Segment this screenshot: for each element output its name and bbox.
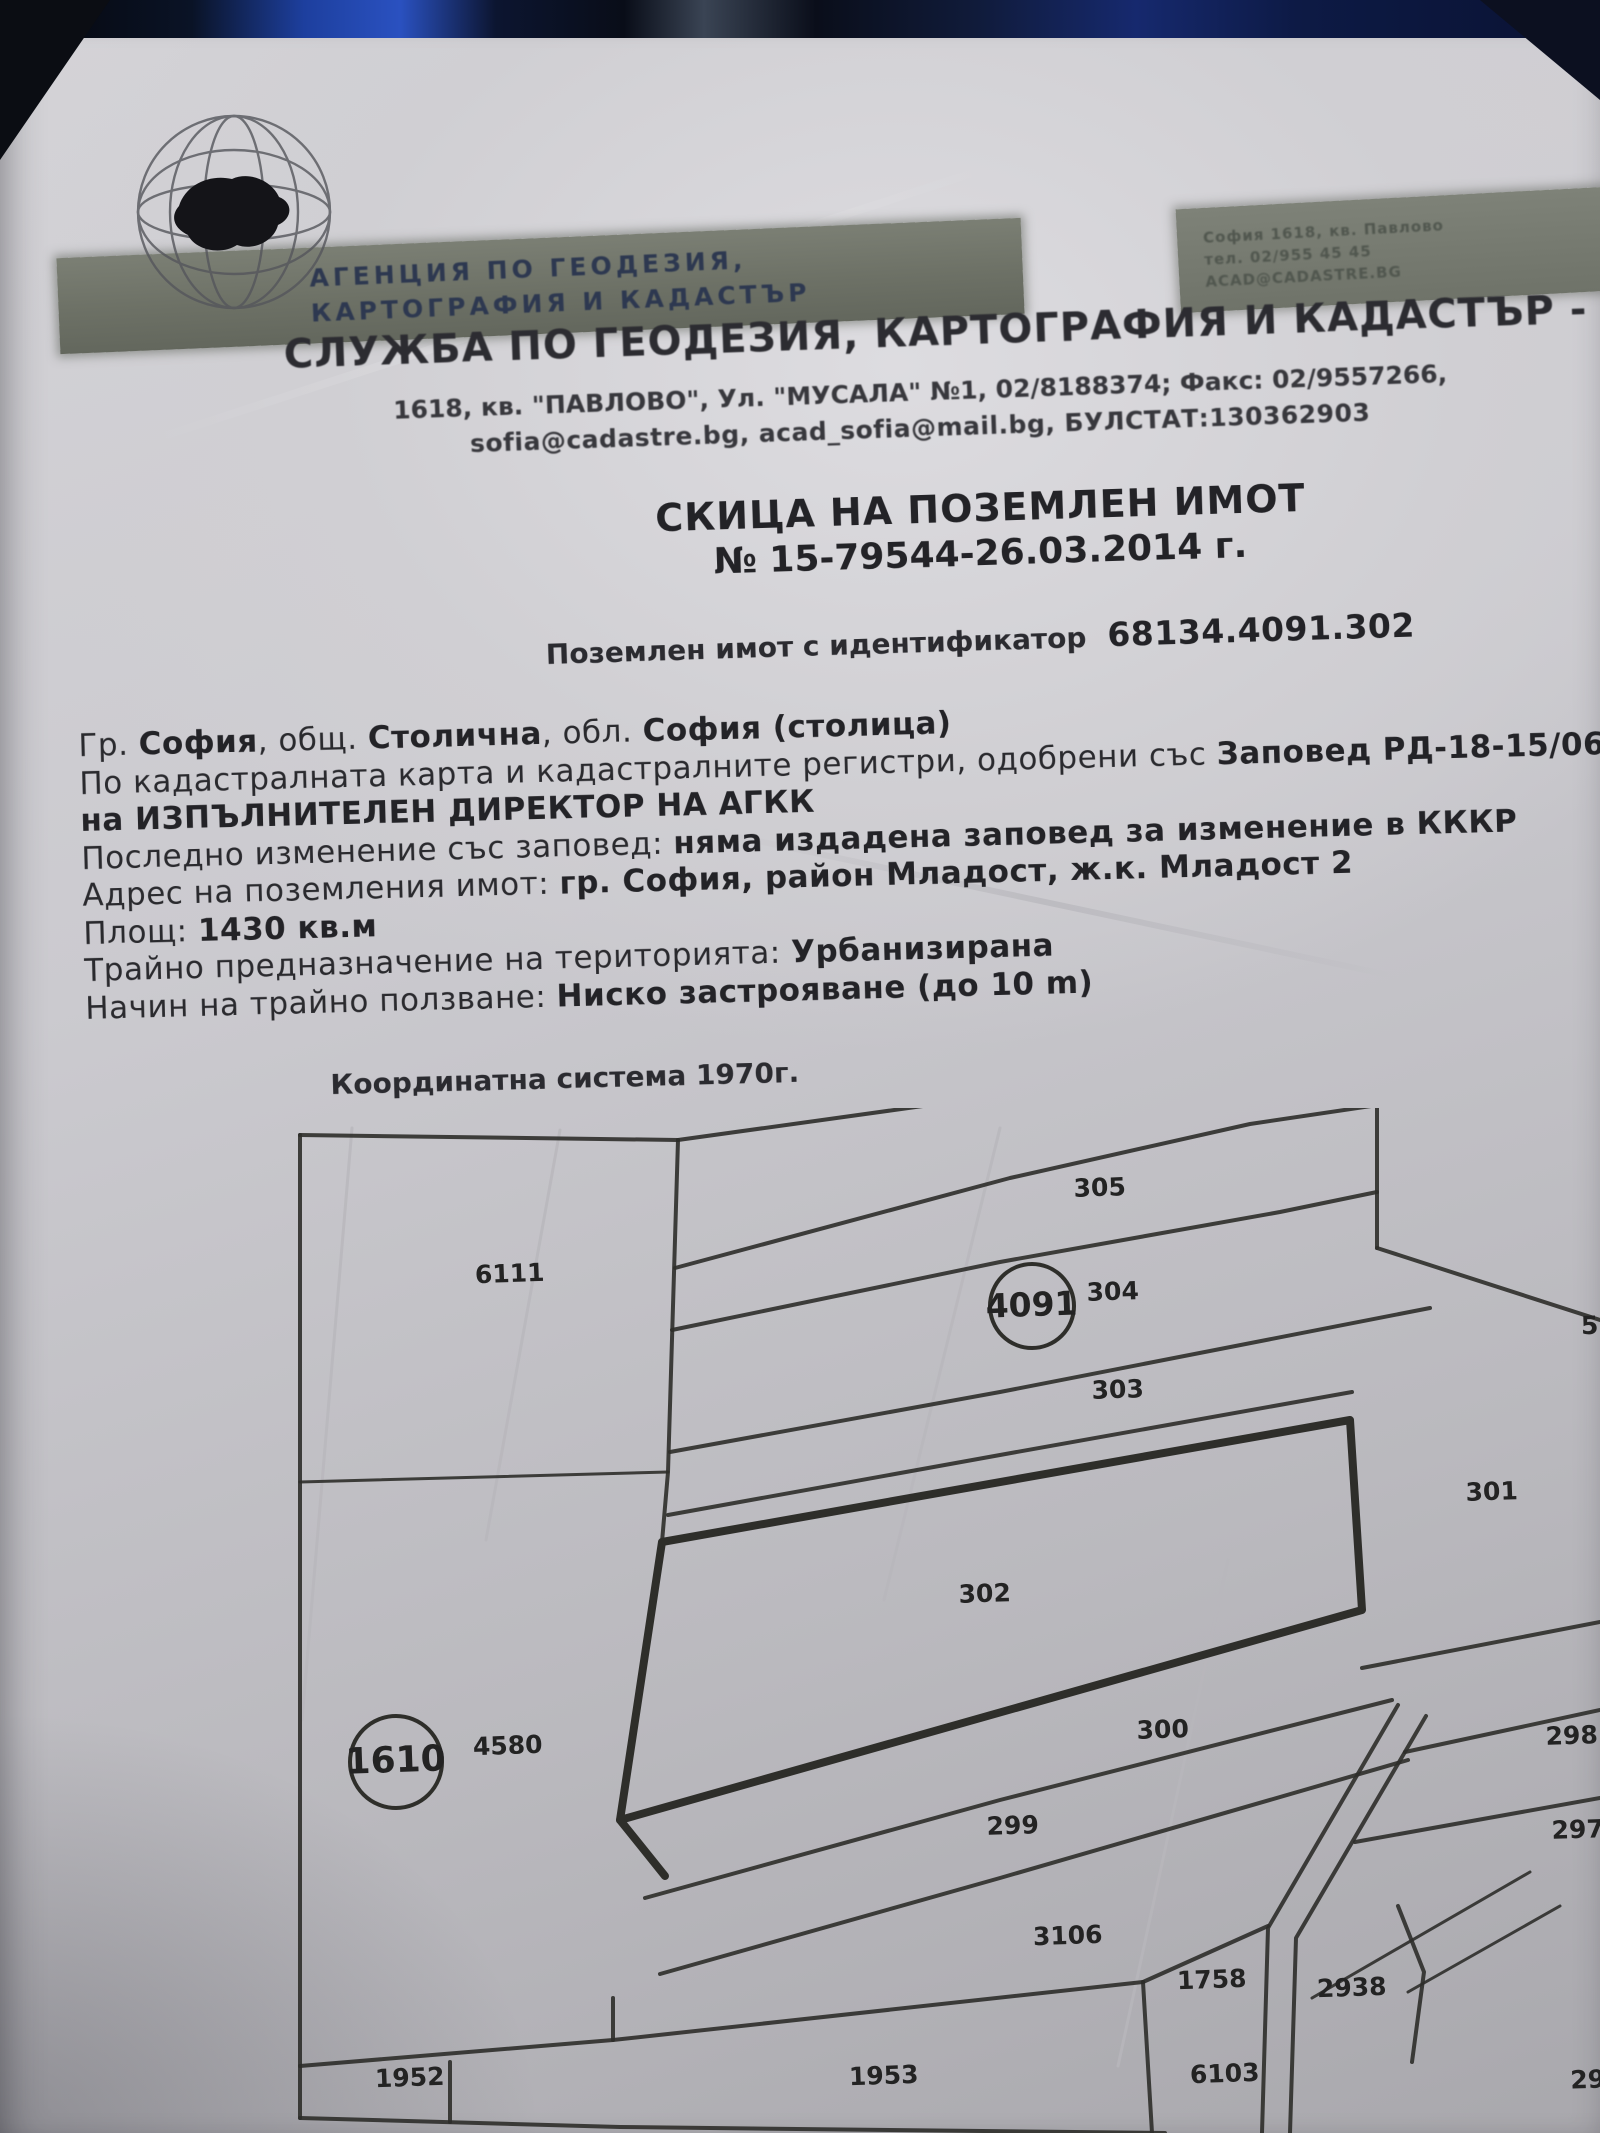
map-paper-crease xyxy=(486,1130,560,1540)
cadastre-boundary-line xyxy=(300,2118,1165,2133)
parcel-label-297: 297 xyxy=(1551,1814,1600,1845)
cadastre-boundary-line xyxy=(1143,1982,1152,2133)
cadastre-boundary-line xyxy=(668,1392,1352,1515)
photo-of-cadastral-document: { "colors":{ "paper":"#cfced3", "ink":"#… xyxy=(0,0,1600,2133)
photo-background-strip xyxy=(0,0,1600,38)
parcel-label-298: 298 xyxy=(1545,1720,1598,1751)
parcel-label-29: 29 xyxy=(1570,2064,1600,2094)
parcel-label-4091: 4091 xyxy=(985,1283,1078,1325)
cadastre-boundary-line xyxy=(1362,1622,1600,1668)
cadastre-boundary-line xyxy=(300,1135,678,1140)
parcel-label-301: 301 xyxy=(1465,1476,1518,1507)
cadastre-boundary-line xyxy=(670,1308,1430,1452)
subject-parcel-boundary xyxy=(620,1820,665,1876)
cadastre-boundary-line xyxy=(662,1140,678,1542)
cadastre-boundary-line xyxy=(675,1108,1600,1268)
cadastre-boundary-line xyxy=(1408,1906,1560,1992)
parcel-label-1758: 1758 xyxy=(1176,1964,1247,1995)
parcel-label-299: 299 xyxy=(986,1810,1039,1841)
cadastre-boundary-line xyxy=(1377,1248,1600,1320)
parcel-label-305: 305 xyxy=(1073,1172,1126,1203)
parcel-label-5: 5 xyxy=(1580,1311,1598,1341)
property-info-block: Гр. София, общ. Столична, обл. София (ст… xyxy=(78,686,1600,1028)
parcel-label-3106: 3106 xyxy=(1032,1920,1103,1951)
parcel-label-304: 304 xyxy=(1086,1276,1139,1307)
parcel-label-6103: 6103 xyxy=(1189,2058,1260,2089)
parcel-label-302: 302 xyxy=(958,1578,1011,1609)
agency-globe-logo xyxy=(132,110,336,314)
parcel-label-2938: 2938 xyxy=(1316,1972,1387,2003)
parcel-label-1952: 1952 xyxy=(374,2062,445,2093)
parcel-label-1953: 1953 xyxy=(848,2060,919,2091)
cadastre-boundary-line xyxy=(300,1982,1143,2066)
subject-parcel-boundary xyxy=(620,1420,1362,1820)
parcel-label-4580: 4580 xyxy=(472,1730,543,1761)
parcel-label-300: 300 xyxy=(1136,1714,1189,1745)
map-paper-crease xyxy=(884,1128,1000,1600)
parcel-label-1610: 1610 xyxy=(345,1738,447,1782)
cadastre-boundary-line xyxy=(678,1108,1600,1140)
parcel-label-6111: 6111 xyxy=(474,1258,545,1289)
cadastre-boundary-line xyxy=(300,1472,668,1482)
map-paper-crease xyxy=(302,1128,352,1720)
parcel-label-303: 303 xyxy=(1091,1374,1144,1405)
cadastral-map: 3056111409130430330130230029816104580299… xyxy=(280,1108,1600,2133)
